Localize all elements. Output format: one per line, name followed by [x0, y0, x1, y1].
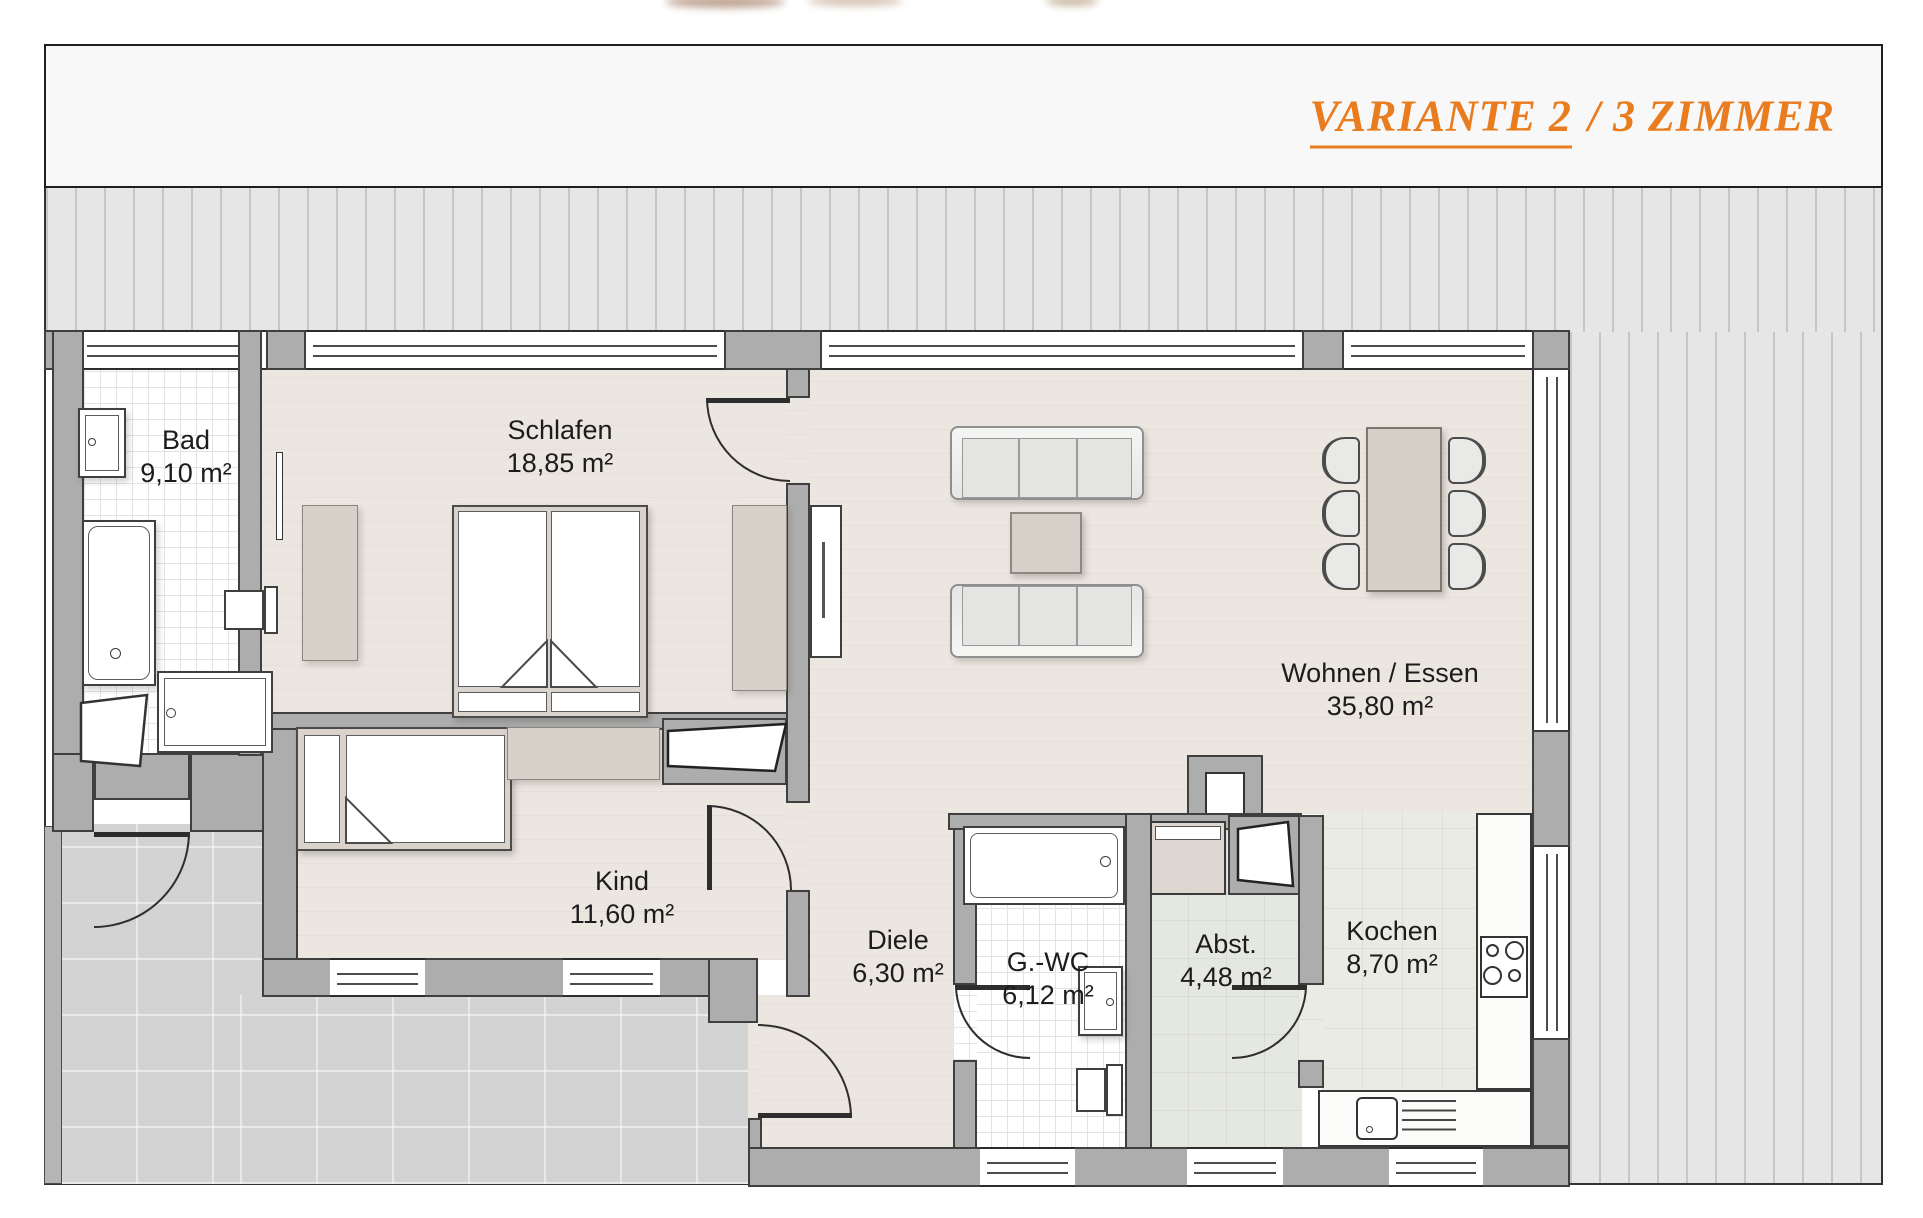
tv-sideboard-wohnen	[810, 505, 842, 658]
dining-table	[1366, 427, 1442, 592]
room-area: 8,70 m²	[1346, 948, 1438, 981]
wall-abst-kochen-b	[1298, 1060, 1324, 1088]
bed-kind-mattress	[346, 735, 505, 843]
wall-schlafen-east-b	[786, 483, 810, 803]
washer-abst-top	[1155, 826, 1221, 840]
floorplan: Bad 9,10 m² Schlafen 18,85 m² Kind 11,60…	[0, 0, 1923, 1218]
dining-chair	[1322, 437, 1360, 484]
wall-west	[52, 330, 84, 780]
stove-burner	[1486, 944, 1499, 957]
sofa-north-seats	[962, 438, 1132, 498]
photo-smudge	[665, 0, 785, 8]
label-diele: Diele 6,30 m²	[852, 924, 944, 990]
bed-schlafen-bench-right	[551, 692, 640, 712]
wall-east-mid	[1532, 730, 1570, 847]
tv-wohnen	[822, 542, 825, 618]
window-gwc-south	[980, 1147, 1075, 1187]
wall-kind-east	[786, 890, 810, 997]
photo-smudge	[1046, 0, 1098, 6]
window-kochen-south	[1389, 1147, 1483, 1187]
bed-schlafen-bench-left	[458, 692, 547, 712]
label-schlafen: Schlafen 18,85 m²	[507, 414, 614, 480]
bathtub-gwc-basin	[970, 833, 1118, 898]
label-wohnen: Wohnen / Essen 35,80 m²	[1281, 657, 1479, 723]
window-schlafen	[306, 330, 724, 370]
dining-chair	[1322, 490, 1360, 537]
room-name: Schlafen	[507, 414, 614, 447]
stove-burner	[1508, 969, 1521, 982]
bed-schlafen-mattress-right	[551, 511, 640, 687]
dining-chair	[1322, 543, 1360, 590]
kitchen-sink-drain	[1366, 1126, 1373, 1133]
room-name: G.-WC	[1002, 946, 1094, 979]
floor-terrace-south	[240, 995, 752, 1184]
title-bar: VARIANTE 2/ 3 ZIMMER	[44, 44, 1883, 188]
wall-bad-south-a	[52, 753, 94, 832]
shower-bad-tray	[164, 678, 266, 746]
wall-schlafen-east-a	[786, 368, 810, 398]
toilet-bad-cistern	[264, 586, 278, 634]
bathtub-bad-drain	[110, 648, 121, 659]
window-abst-south	[1187, 1147, 1283, 1187]
bed-kind-pillow	[304, 735, 340, 843]
wall-entry-step	[708, 958, 758, 1023]
stove-burner	[1483, 966, 1502, 985]
toilet-gwc	[1076, 1068, 1106, 1112]
label-kochen: Kochen 8,70 m²	[1346, 915, 1438, 981]
room-area: 18,85 m²	[507, 447, 614, 480]
plan-title: VARIANTE 2/ 3 ZIMMER	[1310, 91, 1835, 142]
kitchen-sink	[1356, 1097, 1398, 1140]
bathtub-gwc-drain	[1100, 856, 1111, 867]
bed-schlafen-mattress-left	[458, 511, 547, 687]
sofa-south-seats	[962, 586, 1132, 646]
sofa-south-divider	[1076, 586, 1078, 646]
photo-smudge	[808, 0, 903, 6]
room-name: Bad	[140, 424, 232, 457]
room-name: Diele	[852, 924, 944, 957]
plan-title-variant: VARIANTE 2	[1310, 92, 1572, 149]
wall-pillar-schlafen-wohnen	[724, 330, 822, 370]
wall-bad-south-b	[94, 753, 190, 800]
room-area: 35,80 m²	[1281, 690, 1479, 723]
kitchen-drainboard	[1402, 1100, 1456, 1138]
wall-gwc-west-b	[953, 1060, 977, 1149]
room-name: Kind	[570, 865, 675, 898]
wall-corner-ne	[1532, 330, 1570, 370]
window-wohnen-2	[1344, 330, 1532, 370]
room-area: 6,30 m²	[852, 957, 944, 990]
washbasin-gwc-tap	[1106, 998, 1114, 1006]
radiator-bad	[276, 452, 283, 540]
room-name: Wohnen / Essen	[1281, 657, 1479, 690]
room-name: Abst.	[1180, 928, 1272, 961]
window-wohnen-1	[822, 330, 1302, 370]
wardrobe-schlafen-west	[302, 505, 358, 661]
washbasin-bad-tap	[88, 438, 96, 446]
wall-gwc-abst	[1125, 813, 1152, 1149]
toilet-bad	[224, 590, 264, 630]
label-gwc: G.-WC 6,12 m²	[1002, 946, 1094, 1012]
window-kind-1	[330, 958, 425, 997]
label-kind: Kind 11,60 m²	[570, 865, 675, 931]
wall-kind-west	[262, 726, 298, 997]
plan-title-rooms: / 3 ZIMMER	[1588, 92, 1835, 141]
room-area: 9,10 m²	[140, 457, 232, 490]
desk-kind	[507, 727, 660, 780]
wardrobe-kind-niche	[662, 718, 787, 785]
window-kind-2	[563, 958, 660, 997]
window-wohnen-east	[1532, 370, 1570, 730]
sofa-north-divider	[1076, 438, 1078, 498]
room-area: 4,48 m²	[1180, 961, 1272, 994]
wall-pillar-bad-schlafen	[266, 330, 306, 370]
coffee-table	[1010, 512, 1082, 574]
sofa-south-divider	[1018, 586, 1020, 646]
wall-terrace-west	[44, 826, 62, 1184]
toilet-gwc-cistern	[1106, 1064, 1123, 1116]
wall-abst-kochen-a	[1298, 815, 1324, 985]
label-abst: Abst. 4,48 m²	[1180, 928, 1272, 994]
room-area: 11,60 m²	[570, 898, 675, 931]
label-bad: Bad 9,10 m²	[140, 424, 232, 490]
sofa-north-divider	[1018, 438, 1020, 498]
deck-right-band	[1570, 332, 1883, 1185]
wardrobe-schlafen-east	[732, 505, 787, 691]
wall-pillar-wohnen	[1302, 330, 1344, 370]
shower-bad-drain	[166, 708, 176, 718]
deck-top-band	[44, 188, 1883, 332]
stove-burner	[1505, 941, 1524, 960]
room-area: 6,12 m²	[1002, 979, 1094, 1012]
room-name: Kochen	[1346, 915, 1438, 948]
window-kochen-east	[1532, 847, 1570, 1038]
wall-east-south	[1532, 1038, 1570, 1147]
wall-abst-niche-east	[1228, 815, 1302, 895]
wall-entry-stub	[748, 1118, 762, 1149]
shaft-abst	[1205, 772, 1245, 815]
